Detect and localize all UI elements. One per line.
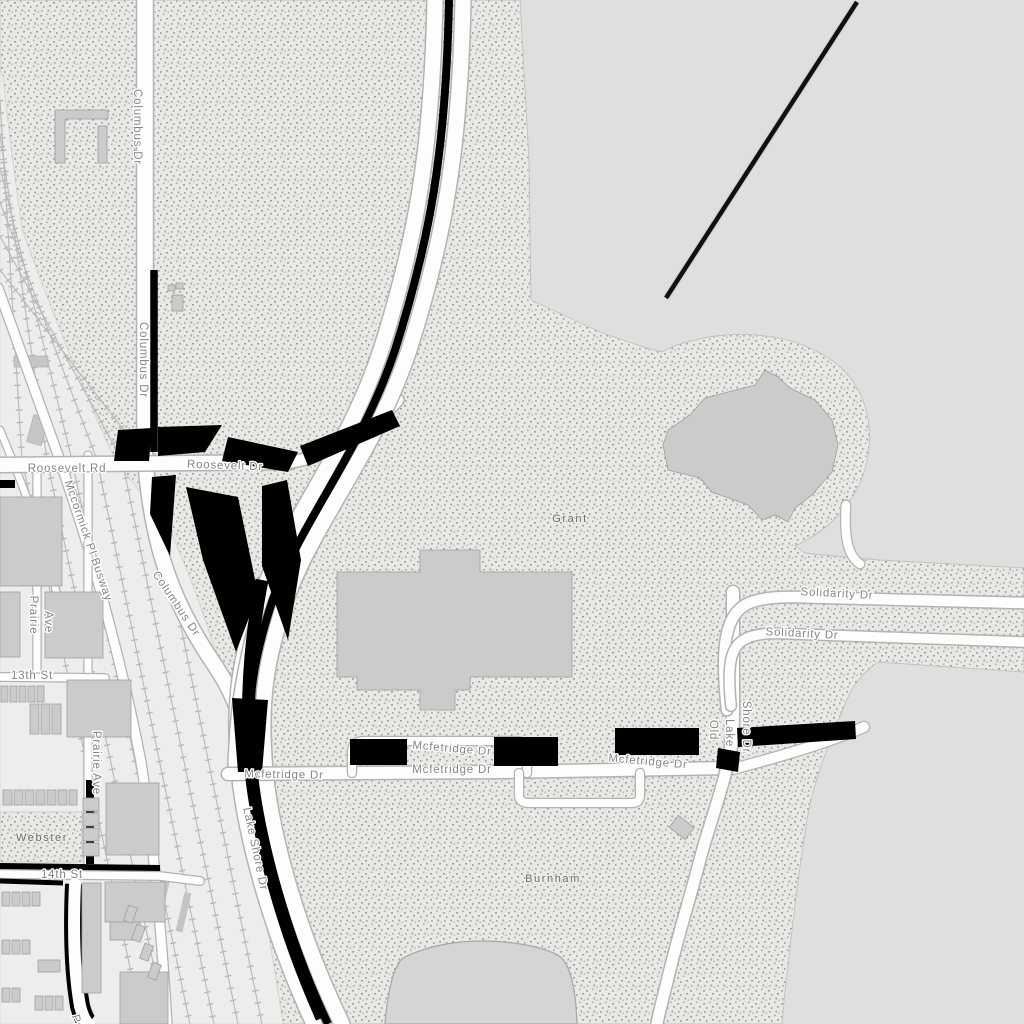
- pond: [385, 941, 577, 1024]
- building: [0, 592, 20, 657]
- building: [106, 783, 159, 855]
- park-label: Grant: [552, 513, 588, 525]
- building: [30, 704, 39, 734]
- road-label: Prairie Ave: [90, 731, 102, 795]
- building: [25, 790, 34, 805]
- building: [19, 686, 26, 702]
- building: [14, 790, 23, 805]
- building: [45, 996, 53, 1010]
- road-label: Roosevelt Rd: [28, 463, 107, 475]
- building: [83, 843, 99, 856]
- building: [168, 285, 175, 291]
- road-label: Columbus Dr: [137, 322, 149, 398]
- map-canvas[interactable]: Columbus DrColumbus DrColumbus DrRooseve…: [0, 0, 1024, 1024]
- building: [47, 790, 56, 805]
- road-label: Lake: [723, 719, 735, 747]
- park-label: Burnham: [525, 873, 581, 885]
- building: [22, 940, 30, 954]
- road-label: Columbus Dr: [131, 89, 143, 165]
- building: [35, 996, 43, 1010]
- building: [69, 790, 77, 805]
- building: [67, 680, 131, 737]
- building: [12, 940, 20, 954]
- road-label: Mcfetridge Dr: [412, 764, 491, 776]
- road-label: 14th St: [41, 869, 83, 881]
- building: [83, 813, 99, 826]
- park-label: Webster: [16, 832, 68, 844]
- building: [82, 883, 101, 993]
- building: [176, 283, 183, 289]
- building: [37, 686, 44, 702]
- building: [12, 988, 20, 1002]
- building: [2, 892, 10, 906]
- building: [83, 828, 99, 841]
- building: [32, 892, 40, 906]
- building: [36, 790, 45, 805]
- road-label: Shore Dr: [740, 701, 752, 753]
- building: [2, 988, 10, 1002]
- building: [12, 892, 20, 906]
- building: [172, 295, 183, 311]
- building: [120, 972, 168, 1024]
- building: [58, 790, 67, 805]
- road-label: Ave: [42, 611, 54, 633]
- building: [10, 686, 17, 702]
- road-label: Mcfetridge Dr: [244, 768, 324, 781]
- building: [3, 790, 12, 805]
- building: [2, 940, 10, 954]
- road-label: 13th St: [11, 670, 53, 682]
- building: [28, 686, 35, 702]
- building: [52, 704, 61, 734]
- building: [1, 686, 8, 702]
- building: [55, 996, 63, 1010]
- building: [22, 892, 30, 906]
- road-label: Old: [707, 720, 719, 740]
- building: [0, 497, 62, 586]
- road-label: Prairie: [27, 596, 39, 635]
- building: [38, 960, 60, 972]
- building: [83, 798, 99, 811]
- building: [98, 126, 107, 163]
- building: [41, 704, 50, 734]
